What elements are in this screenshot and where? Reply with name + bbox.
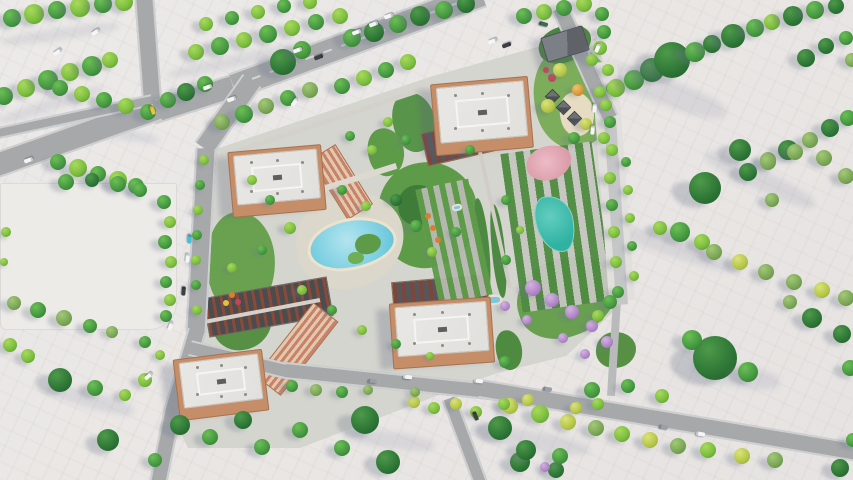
tree-y	[734, 448, 750, 464]
tree-g2	[110, 176, 126, 192]
roof-vent	[507, 127, 510, 130]
roof-vent	[441, 311, 444, 314]
roof-vent	[244, 366, 247, 369]
tree-g3	[21, 349, 35, 363]
car	[538, 21, 548, 27]
tree-g1	[234, 411, 252, 429]
roof-core	[437, 326, 446, 332]
tree-g1	[376, 450, 400, 474]
tree-g4	[670, 438, 686, 454]
tree-g2	[410, 220, 422, 232]
roof-vent	[244, 393, 247, 396]
tree-g4	[363, 385, 373, 395]
tree-y	[541, 99, 555, 113]
tree-g3	[297, 285, 307, 295]
tree-g2	[568, 132, 580, 144]
tree-g2	[158, 235, 172, 249]
tree-g3	[608, 226, 620, 238]
tree-g2	[58, 174, 74, 190]
tree-g3	[629, 271, 639, 281]
tree-g2	[195, 180, 205, 190]
tree-g2	[202, 429, 218, 445]
tree-g2	[842, 360, 853, 376]
tree-g2	[334, 440, 350, 456]
roof-vent	[301, 161, 304, 164]
tree-g3	[357, 325, 367, 335]
tree-g2	[277, 0, 291, 13]
roof-vent	[413, 313, 416, 316]
roof-vent	[507, 94, 510, 97]
tree-g3	[600, 99, 612, 111]
tree-g3	[610, 256, 622, 268]
tree-g4	[838, 168, 853, 184]
tree-g2	[595, 7, 609, 21]
tree-g3	[119, 389, 131, 401]
tree-g1	[833, 325, 851, 343]
tree-g1	[85, 173, 99, 187]
roof-vent	[196, 393, 199, 396]
tree-g4	[7, 296, 21, 310]
tree-g3	[498, 398, 510, 410]
tree-g2	[265, 195, 275, 205]
tree-g3	[586, 54, 598, 66]
tree-g2	[501, 195, 511, 205]
tree-g4	[302, 82, 318, 98]
tree-g2	[139, 336, 151, 348]
tree-p	[525, 280, 541, 296]
tree-g2	[133, 183, 147, 197]
tree-g2	[627, 241, 637, 251]
tree-g4	[783, 295, 797, 309]
tree-g3	[594, 86, 606, 98]
tree-y	[732, 254, 748, 270]
car	[181, 286, 186, 295]
tree-g2	[682, 330, 702, 350]
tree-y	[522, 394, 534, 406]
tree-p	[558, 333, 568, 343]
garden-accent-dot	[223, 300, 229, 306]
tree-g3	[653, 221, 667, 235]
tree-g3	[284, 222, 296, 234]
roof-vent	[220, 364, 223, 367]
garden-accent-dot	[425, 213, 431, 219]
car	[592, 103, 597, 112]
roof-vent	[481, 92, 484, 95]
tree-p	[545, 293, 559, 307]
tree-g2	[839, 31, 853, 45]
tree-g3	[655, 389, 669, 403]
tree-g3	[625, 213, 635, 223]
tree-g3	[155, 350, 165, 360]
tree-g1	[689, 172, 721, 204]
tree-p	[601, 336, 613, 348]
tree-p	[500, 301, 510, 311]
tree-g2	[292, 422, 308, 438]
tree-g4	[310, 384, 322, 396]
tree-g3	[165, 256, 177, 268]
tree-g1	[828, 0, 844, 14]
tree-g1	[516, 440, 536, 460]
tree-g3	[192, 305, 202, 315]
tree-g1	[831, 459, 849, 477]
tree-g2	[83, 319, 97, 333]
tree-g2	[308, 14, 324, 30]
tree-g2	[157, 195, 171, 209]
tree-g2	[584, 382, 600, 398]
roof-vent	[454, 127, 457, 130]
tree-g2	[211, 37, 229, 55]
tree-g3	[284, 20, 300, 36]
tree-g4	[765, 193, 779, 207]
roof-vent	[468, 313, 471, 316]
tree-g4	[106, 326, 118, 338]
tree-g3	[227, 263, 237, 273]
roof-core	[216, 378, 226, 384]
tree-g2	[606, 199, 618, 211]
tree-g3	[623, 185, 633, 195]
tree-g3	[604, 172, 616, 184]
tree-g4	[758, 264, 774, 280]
tree-g3	[606, 144, 618, 156]
tree-g4	[706, 244, 722, 260]
tree-g2	[148, 453, 162, 467]
tree-y	[560, 414, 576, 430]
tree-g2	[840, 110, 853, 126]
tree-g2	[87, 380, 103, 396]
tree-g3	[332, 8, 348, 24]
tree-g2	[465, 145, 475, 155]
tree-g2	[604, 116, 616, 128]
tree-g2	[259, 25, 277, 43]
tree-g1	[351, 406, 379, 434]
car	[187, 234, 192, 243]
garden-accent-dot	[235, 299, 241, 305]
tree-g2	[345, 131, 355, 141]
tree-g4	[787, 144, 803, 160]
roof-vent	[301, 190, 304, 193]
garden-accent-dot	[435, 237, 441, 243]
tree-g3	[383, 117, 393, 127]
tree-g3	[592, 398, 604, 410]
tree-g3	[531, 405, 549, 423]
tree-g2	[552, 448, 568, 464]
tree-g3	[516, 226, 524, 234]
aerial-site-plan-render	[0, 0, 853, 480]
tree-g3	[0, 258, 8, 266]
garden-accent-dot	[229, 292, 235, 298]
tree-g3	[576, 0, 592, 12]
car	[185, 253, 190, 262]
tree-g3	[199, 155, 209, 165]
tree-y	[450, 398, 462, 410]
tree-g2	[286, 380, 298, 392]
tree-y	[642, 432, 658, 448]
tree-g3	[193, 205, 203, 215]
tree-g2	[160, 310, 172, 322]
car	[487, 37, 497, 44]
tree-g4	[410, 387, 420, 397]
tree-g2	[738, 362, 758, 382]
tree-g2	[846, 433, 853, 447]
tree-g2	[401, 135, 411, 145]
car	[52, 48, 62, 57]
tree-g2	[621, 157, 631, 167]
tree-g2	[160, 276, 172, 288]
tree-g3	[428, 402, 440, 414]
tree-g4	[838, 290, 853, 306]
tree-g2	[337, 185, 347, 195]
tree-p	[522, 315, 532, 325]
tree-g2	[192, 230, 202, 240]
tree-g2	[451, 227, 461, 237]
tree-p	[565, 305, 579, 319]
tree-g2	[597, 25, 611, 39]
tree-g2	[391, 339, 401, 349]
tree-o	[572, 84, 584, 96]
tree-g3	[598, 132, 610, 144]
road-segment	[134, 0, 162, 101]
tree-g1	[97, 429, 119, 451]
tree-g2	[603, 295, 617, 309]
garden-accent-dot	[430, 225, 436, 231]
car	[590, 125, 595, 134]
tree-g3	[602, 64, 614, 76]
tree-g2	[254, 439, 270, 455]
tree-g3	[164, 294, 176, 306]
roof-vent	[250, 190, 253, 193]
roof-vent	[276, 159, 279, 162]
tree-g1	[390, 194, 402, 206]
tree-g3	[199, 17, 213, 31]
tree-g4	[760, 154, 776, 170]
tree-g2	[621, 379, 635, 393]
tree-g3	[102, 52, 118, 68]
tree-g1	[170, 415, 190, 435]
tree-g3	[1, 227, 11, 237]
tree-g2	[191, 280, 201, 290]
roof-vent	[276, 192, 279, 195]
tree-g4	[816, 150, 832, 166]
tree-g4	[845, 53, 853, 67]
tree-y	[570, 402, 582, 414]
tree-g2	[257, 245, 267, 255]
tree-g4	[56, 310, 72, 326]
tree-g3	[592, 310, 604, 322]
tree-y	[553, 63, 567, 77]
tree-g4	[588, 420, 604, 436]
roof-vent	[481, 129, 484, 132]
tree-g2	[499, 356, 511, 368]
roof-core	[272, 174, 281, 180]
roof-vent	[468, 342, 471, 345]
tree-g3	[426, 352, 434, 360]
tree-g3	[3, 338, 17, 352]
car	[695, 431, 705, 437]
tree-g1	[488, 416, 512, 440]
tree-g4	[786, 274, 802, 290]
tree-g3	[427, 247, 437, 257]
tree-g3	[303, 0, 317, 9]
tree-g2	[30, 302, 46, 318]
tree-g1	[48, 368, 72, 392]
roof-vent	[220, 395, 223, 398]
roof-vent	[413, 342, 416, 345]
roof-vent	[441, 344, 444, 347]
tree-g2	[336, 386, 348, 398]
tree-g3	[400, 54, 416, 70]
tree-g3	[191, 255, 201, 265]
tree-g4	[767, 452, 783, 468]
tree-g3	[700, 442, 716, 458]
roof-vent	[454, 94, 457, 97]
tree-g3	[164, 216, 176, 228]
roof-vent	[250, 161, 253, 164]
tree-p	[580, 349, 590, 359]
tree-g3	[361, 201, 371, 211]
roof-vent	[196, 366, 199, 369]
car	[658, 424, 668, 430]
tree-g3	[367, 145, 377, 155]
car	[501, 41, 511, 48]
tree-g3	[251, 5, 265, 19]
tree-y	[814, 282, 830, 298]
tree-g2	[225, 11, 239, 25]
roof-core	[477, 109, 486, 115]
tree-g3	[247, 175, 257, 185]
tree-g2	[501, 255, 511, 265]
tree-g2	[327, 305, 337, 315]
tree-g1	[729, 139, 751, 161]
tree-g1	[802, 308, 822, 328]
tree-g3	[614, 426, 630, 442]
